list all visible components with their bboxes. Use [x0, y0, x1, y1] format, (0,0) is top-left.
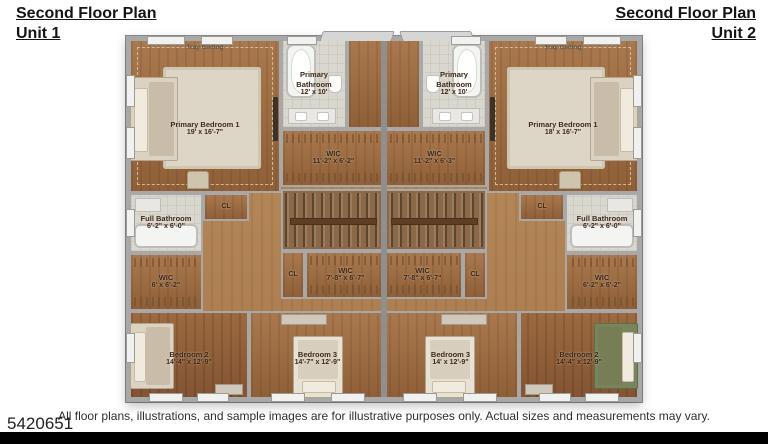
window [126, 127, 135, 159]
unit1-bedroom3: Bedroom 3 14'-7" x 12'-9" [249, 311, 384, 397]
room-label: WIC 11'-2" x 6'-3" [384, 131, 485, 185]
window [451, 36, 481, 45]
room-dims: 11'-2" x 6'-3" [414, 158, 456, 167]
window [539, 393, 571, 402]
window [633, 75, 642, 107]
room-name: Full Bathroom [141, 214, 192, 223]
room-label: WIC 6'-2" x 6'-2" [567, 255, 637, 309]
sink-vanity [135, 198, 161, 212]
window [331, 393, 365, 402]
window [633, 127, 642, 159]
room-dims: 6'-2" x 6'-2" [583, 282, 621, 291]
window [585, 393, 619, 402]
tray-ceiling-label: Tray Ceiling [489, 44, 637, 51]
window [463, 393, 497, 402]
room-dims: 6' x 6'-2" [152, 282, 180, 291]
room-dims: 11'-2" x 6'-2" [313, 158, 355, 167]
window [126, 209, 135, 237]
window [201, 36, 233, 45]
unit1-wic-small: WIC 6' x 6'-2" [131, 253, 203, 311]
unit2-bedroom2: Bedroom 2 14'-4" x 12'-9" [519, 311, 637, 397]
unit2-plan: Tray Ceiling Primary Bedroom 1 18' x 16'… [384, 41, 637, 397]
unit1-primary-bathroom: Primary Bathroom 12' x 10' [281, 41, 347, 129]
window [149, 393, 183, 402]
unit2-primary-wic: WIC 11'-2" x 6'-3" [384, 129, 487, 187]
room-name: WIC [415, 266, 430, 275]
unit1-plan: Tray Ceiling Primary Bedroom 1 19' x 16'… [131, 41, 384, 397]
window [633, 209, 642, 237]
disclaimer-text: All floor plans, illustrations, and samp… [0, 409, 768, 423]
unit2-heading-title: Second Floor Plan [616, 4, 756, 24]
floor-plan: Tray Ceiling Primary Bedroom 1 19' x 16'… [126, 36, 642, 402]
media-console [490, 97, 495, 141]
window [126, 333, 135, 363]
media-console [273, 97, 278, 141]
unit1-heading-title: Second Floor Plan [16, 4, 156, 24]
unit2-closet: CL [519, 193, 565, 221]
bedroom2-bed [594, 323, 638, 389]
unit2-hall [384, 41, 421, 129]
unit2-wic-small: WIC 6'-2" x 6'-2" [565, 253, 637, 311]
unit1-full-bathroom: Full Bathroom 6'-2" x 6'-0" [131, 193, 203, 253]
dresser [281, 314, 327, 325]
toilet [328, 75, 342, 93]
room-name: WIC [595, 273, 610, 282]
unit2-bedroom3: Bedroom 3 14' x 12'-9" [384, 311, 519, 397]
unit1-hall-wic: WIC 7'-8" x 6'-7" [305, 251, 384, 299]
room-name: Full Bathroom [577, 214, 628, 223]
party-wall [381, 41, 387, 397]
bedroom3-bed [425, 336, 475, 398]
unit1-bedroom2: Bedroom 2 14'-4" x 12'-9" [131, 311, 249, 397]
room-dims: 7'-8" x 6'-7" [327, 275, 365, 284]
bathtub [134, 224, 198, 248]
window [287, 36, 317, 45]
unit2-hall-wic: WIC 7'-8" x 6'-7" [384, 251, 463, 299]
unit2-primary-bathroom: Primary Bathroom 12' x 10' [421, 41, 487, 129]
unit1-hall-closet: CL [281, 251, 305, 299]
listing-number: 5420651 [7, 414, 73, 434]
unit1-staircase [281, 189, 384, 251]
unit2-staircase [384, 189, 487, 251]
room-name: WIC [326, 149, 341, 158]
window [197, 393, 229, 402]
window [633, 333, 642, 363]
closet-label: CL [521, 195, 563, 219]
double-vanity [288, 108, 336, 124]
room-label: WIC 7'-8" x 6'-7" [384, 253, 461, 297]
room-label: WIC 11'-2" x 6'-2" [283, 131, 384, 185]
closet-label: CL [205, 195, 247, 219]
double-vanity [432, 108, 480, 124]
unit1-primary-bedroom: Tray Ceiling Primary Bedroom 1 19' x 16'… [131, 41, 281, 193]
window [403, 393, 437, 402]
room-label: WIC 6' x 6'-2" [131, 255, 201, 309]
bedroom2-bed [130, 323, 174, 389]
room-name: WIC [159, 273, 174, 282]
unit1-hall [347, 41, 384, 129]
armchair [559, 171, 581, 189]
unit2-primary-bedroom: Tray Ceiling Primary Bedroom 1 18' x 16'… [487, 41, 637, 193]
primary-bed [590, 77, 638, 161]
bathtub [570, 224, 634, 248]
window [271, 393, 305, 402]
bathtub [452, 44, 482, 98]
room-dims: 7'-8" x 6'-7" [404, 275, 442, 284]
bedroom3-bed [293, 336, 343, 398]
room-name: WIC [427, 149, 442, 158]
window [583, 36, 621, 45]
sink-vanity [607, 198, 633, 212]
tray-ceiling-label: Tray Ceiling [131, 44, 279, 51]
window [147, 36, 185, 45]
closet-label: CL [283, 253, 303, 297]
window [126, 75, 135, 107]
closet-label: CL [465, 253, 485, 297]
bathtub [286, 44, 316, 98]
armchair [187, 171, 209, 189]
room-name: WIC [338, 266, 353, 275]
unit2-hall-closet: CL [463, 251, 487, 299]
room-name: Bedroom 2 [169, 350, 208, 359]
room-label: WIC 7'-8" x 6'-7" [307, 253, 384, 297]
toilet [426, 75, 440, 93]
unit1-closet: CL [203, 193, 249, 221]
bottom-black-bar [0, 432, 768, 444]
unit2-full-bathroom: Full Bathroom 6'-2" x 6'-0" [565, 193, 637, 253]
room-name: Bedroom 2 [559, 350, 598, 359]
unit1-primary-wic: WIC 11'-2" x 6'-2" [281, 129, 384, 187]
window [535, 36, 567, 45]
dresser [441, 314, 487, 325]
primary-bed [130, 77, 178, 161]
